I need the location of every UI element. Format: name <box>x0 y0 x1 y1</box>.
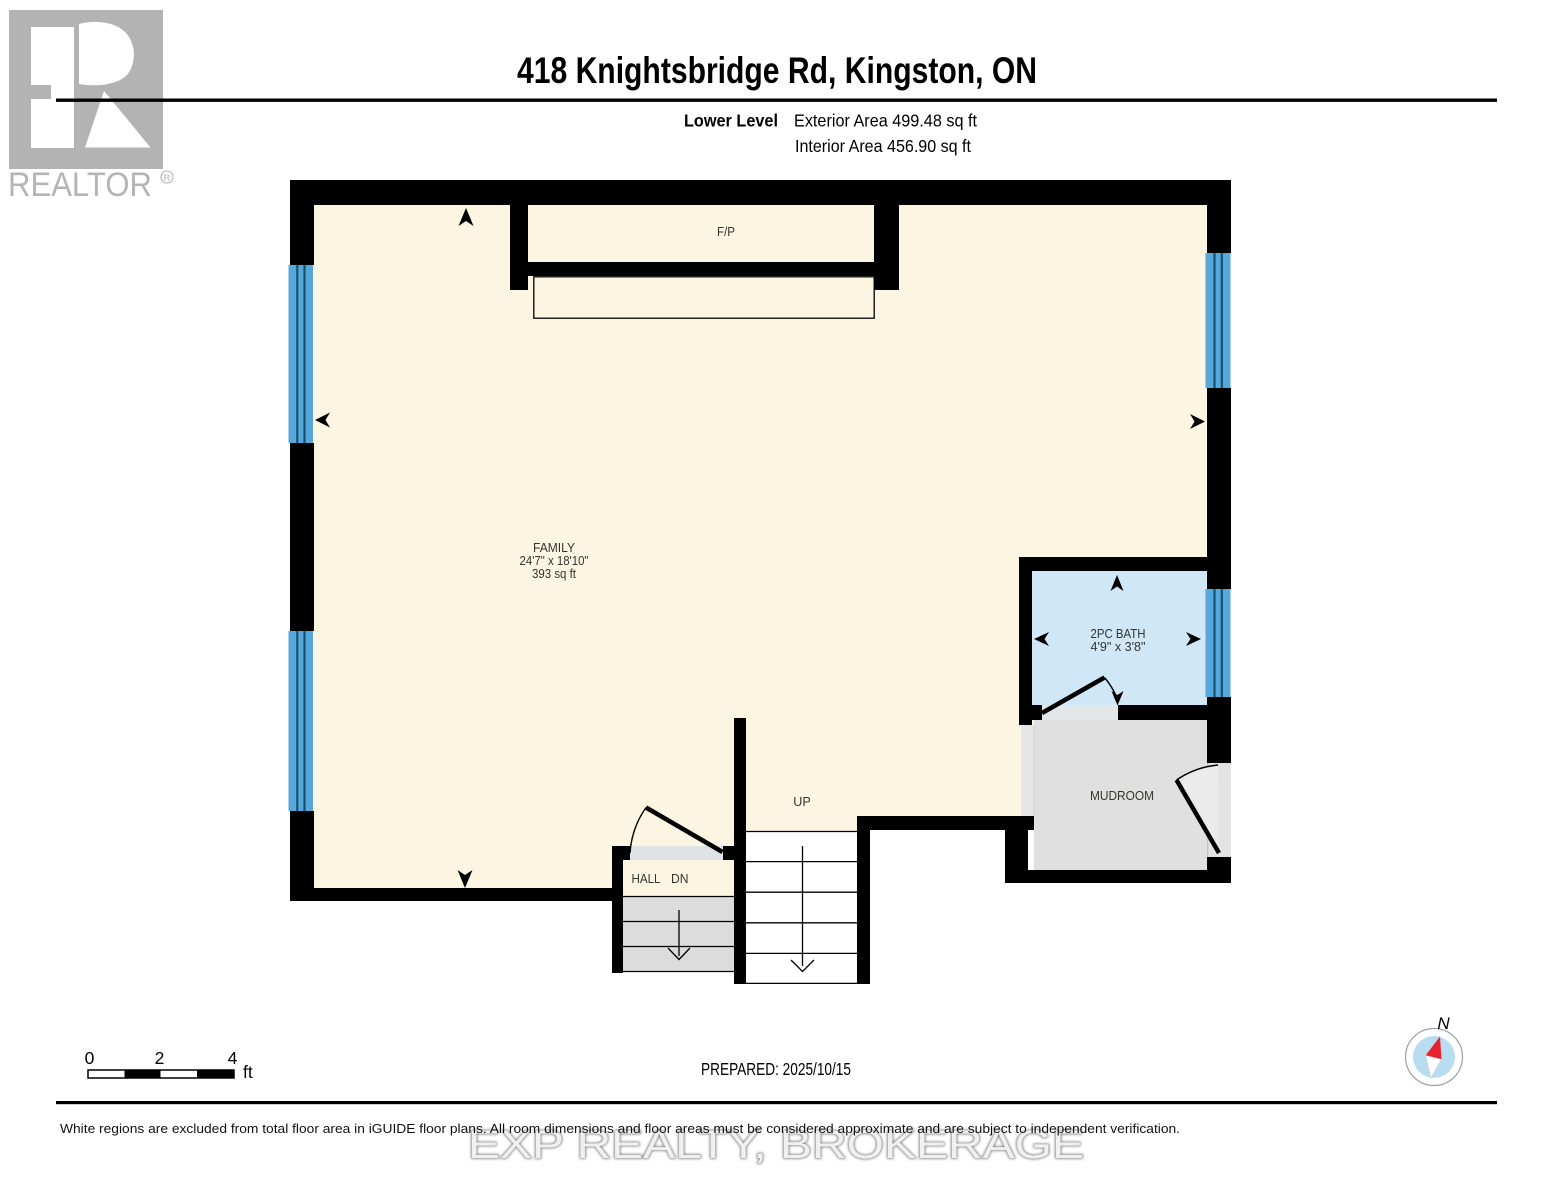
svg-text:UP: UP <box>793 795 811 809</box>
svg-text:R: R <box>164 173 171 183</box>
svg-text:2: 2 <box>155 1048 165 1068</box>
svg-text:4: 4 <box>228 1048 238 1068</box>
svg-text:Interior Area 456.90 sq ft: Interior Area 456.90 sq ft <box>795 136 971 156</box>
svg-text:ft: ft <box>243 1062 253 1082</box>
svg-text:REALTOR: REALTOR <box>8 166 152 204</box>
svg-text:2PC BATH: 2PC BATH <box>1091 627 1146 641</box>
svg-text:Lower Level: Lower Level <box>684 111 778 131</box>
svg-text:PREPARED: 2025/10/15: PREPARED: 2025/10/15 <box>701 1059 851 1079</box>
svg-text:HALL: HALL <box>632 872 661 886</box>
svg-text:DN: DN <box>671 872 689 886</box>
svg-text:Exterior Area 499.48 sq ft: Exterior Area 499.48 sq ft <box>794 111 977 131</box>
svg-text:418 Knightsbridge Rd, Kingston: 418 Knightsbridge Rd, Kingston, ON <box>517 50 1037 91</box>
svg-text:FAMILY: FAMILY <box>533 541 576 555</box>
svg-text:F/P: F/P <box>717 225 735 239</box>
svg-text:0: 0 <box>85 1048 95 1068</box>
svg-text:N: N <box>1437 1014 1450 1033</box>
svg-text:MUDROOM: MUDROOM <box>1090 789 1154 803</box>
svg-text:4'9" x 3'8": 4'9" x 3'8" <box>1091 640 1146 654</box>
svg-text:White regions are excluded fro: White regions are excluded from total fl… <box>60 1121 1180 1136</box>
svg-text:24'7" x 18'10": 24'7" x 18'10" <box>520 554 589 568</box>
svg-text:393 sq ft: 393 sq ft <box>532 567 576 581</box>
